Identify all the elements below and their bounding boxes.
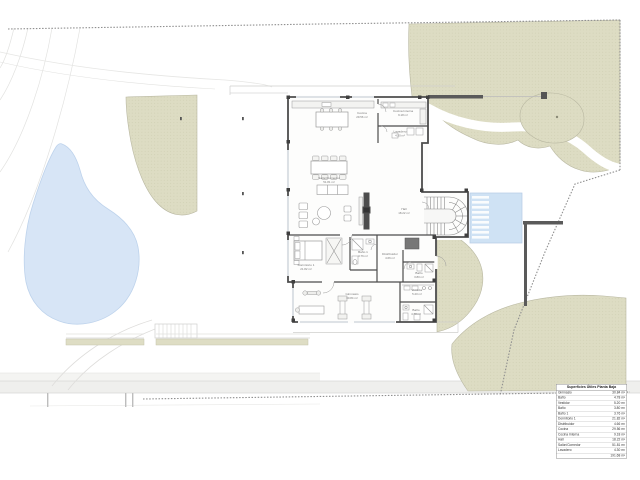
coffee-table: [318, 207, 331, 220]
areas-table: Gimnasio30.84 m²Baño4.78 m²Vestidor5.20 …: [557, 391, 627, 459]
vegetation-left: [126, 95, 197, 215]
kitchen-counter: [292, 101, 374, 108]
vegetation-bottom-right: [452, 295, 626, 391]
room-name-cell: [557, 453, 598, 458]
planting-strip: [66, 339, 144, 345]
svg-text:4.30 m²: 4.30 m²: [395, 134, 405, 138]
svg-text:18.22 m²: 18.22 m²: [398, 211, 409, 215]
drawing-sheet: Cocina 29.56 m² Cocina Interna 9.18 m² L…: [0, 0, 640, 480]
sofa: [317, 185, 348, 195]
svg-text:30.84 m²: 30.84 m²: [346, 296, 357, 300]
vegetation-right: [437, 228, 483, 332]
areas-legend: Superficies Útiles Planta Baja Gimnasio3…: [556, 384, 627, 459]
svg-text:21.82 m²: 21.82 m²: [300, 267, 311, 271]
svg-text:29.56 m²: 29.56 m²: [356, 115, 367, 119]
dining-table: [311, 161, 347, 174]
dumbbell-icon: [303, 291, 321, 295]
svg-text:5.20 m²: 5.20 m²: [412, 292, 422, 296]
planting-strip: [156, 339, 308, 345]
kitchen-island: [316, 112, 348, 127]
water-feature: [470, 193, 522, 243]
pool: [24, 144, 139, 325]
svg-text:4.66 m²: 4.66 m²: [385, 256, 395, 260]
svg-text:3.80 m²: 3.80 m²: [414, 275, 424, 279]
areas-table-body: Gimnasio30.84 m²Baño4.78 m²Vestidor5.20 …: [557, 391, 627, 459]
tv-bench: [359, 197, 363, 225]
svg-text:3.76 m²: 3.76 m²: [358, 254, 368, 258]
svg-text:9.18 m²: 9.18 m²: [398, 113, 408, 117]
kitchen-sink: [322, 103, 331, 107]
room-area-cell: 191.68 m²: [598, 453, 627, 458]
table-total-row: 191.68 m²: [557, 453, 627, 458]
installation-shaft: [405, 238, 419, 249]
svg-text:51.81 m²: 51.81 m²: [323, 180, 334, 184]
gym-bench: [299, 306, 324, 314]
svg-text:4.78 m²: 4.78 m²: [411, 312, 421, 316]
site-plan-drawing: Cocina 29.56 m² Cocina Interna 9.18 m² L…: [0, 0, 640, 480]
